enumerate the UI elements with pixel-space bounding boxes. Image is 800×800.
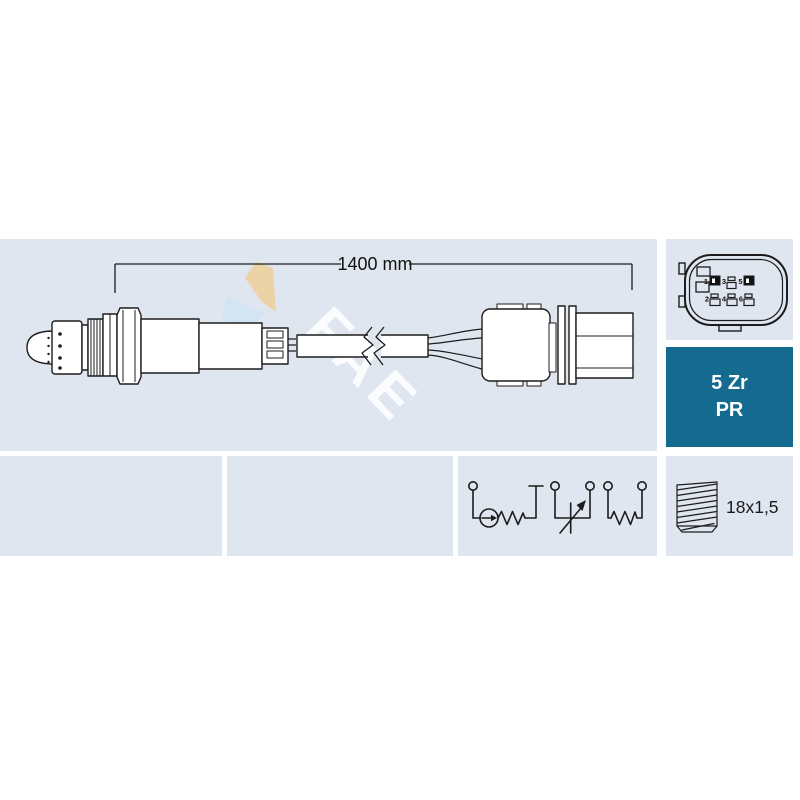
connector-outline <box>685 255 787 325</box>
connector-pinout-icon: 1 3 5 2 4 6 <box>666 239 793 340</box>
product-image: FAE 1400 mm <box>0 0 800 800</box>
sensor-diagram: FAE 1400 mm <box>0 239 657 451</box>
fae-logo-tan-shape <box>245 262 276 312</box>
terminal-circle <box>551 482 559 490</box>
sensor-body <box>141 319 199 373</box>
empty-panel-2 <box>227 456 453 556</box>
thread-size-label: 18x1,5 <box>726 497 779 517</box>
empty-panel-1 <box>0 456 222 556</box>
resistor-symbol <box>498 512 525 525</box>
circuit-diagram-icon <box>458 456 657 556</box>
sensor-cable <box>297 335 368 357</box>
connector-housing <box>482 309 550 381</box>
pin-label-6: 6 <box>739 295 743 304</box>
thread-bolt-icon: 18x1,5 <box>666 456 793 556</box>
dimension-label: 1400 mm <box>337 254 412 274</box>
terminal-circle <box>638 482 646 490</box>
thread-size-panel: 18x1,5 <box>666 456 793 556</box>
terminal-circle <box>586 482 594 490</box>
sensor-thread <box>88 319 103 376</box>
sensor-hex-nut <box>117 308 141 384</box>
fae-watermark-text: FAE <box>294 295 434 436</box>
pin-label-5: 5 <box>738 277 742 286</box>
pin-label-3: 3 <box>722 277 726 286</box>
circuit-diagram-panel <box>458 456 657 556</box>
sensor-diagram-panel: FAE 1400 mm <box>0 239 657 451</box>
pin-label-1: 1 <box>704 277 708 286</box>
sensor-tip <box>27 331 54 364</box>
badge-line2: PR <box>716 397 744 424</box>
sensor-shield <box>52 321 82 374</box>
connector-pinout-panel: 1 3 5 2 4 6 <box>666 239 793 340</box>
pin-label-2: 2 <box>705 295 709 304</box>
terminal-circle <box>469 482 477 490</box>
badge-line1: 5 Zr <box>711 370 748 397</box>
connector-wires <box>428 329 482 369</box>
spec-badge: 5 Zr PR <box>666 347 793 447</box>
heater-resistor-symbol <box>611 512 637 525</box>
terminal-circle <box>604 482 612 490</box>
